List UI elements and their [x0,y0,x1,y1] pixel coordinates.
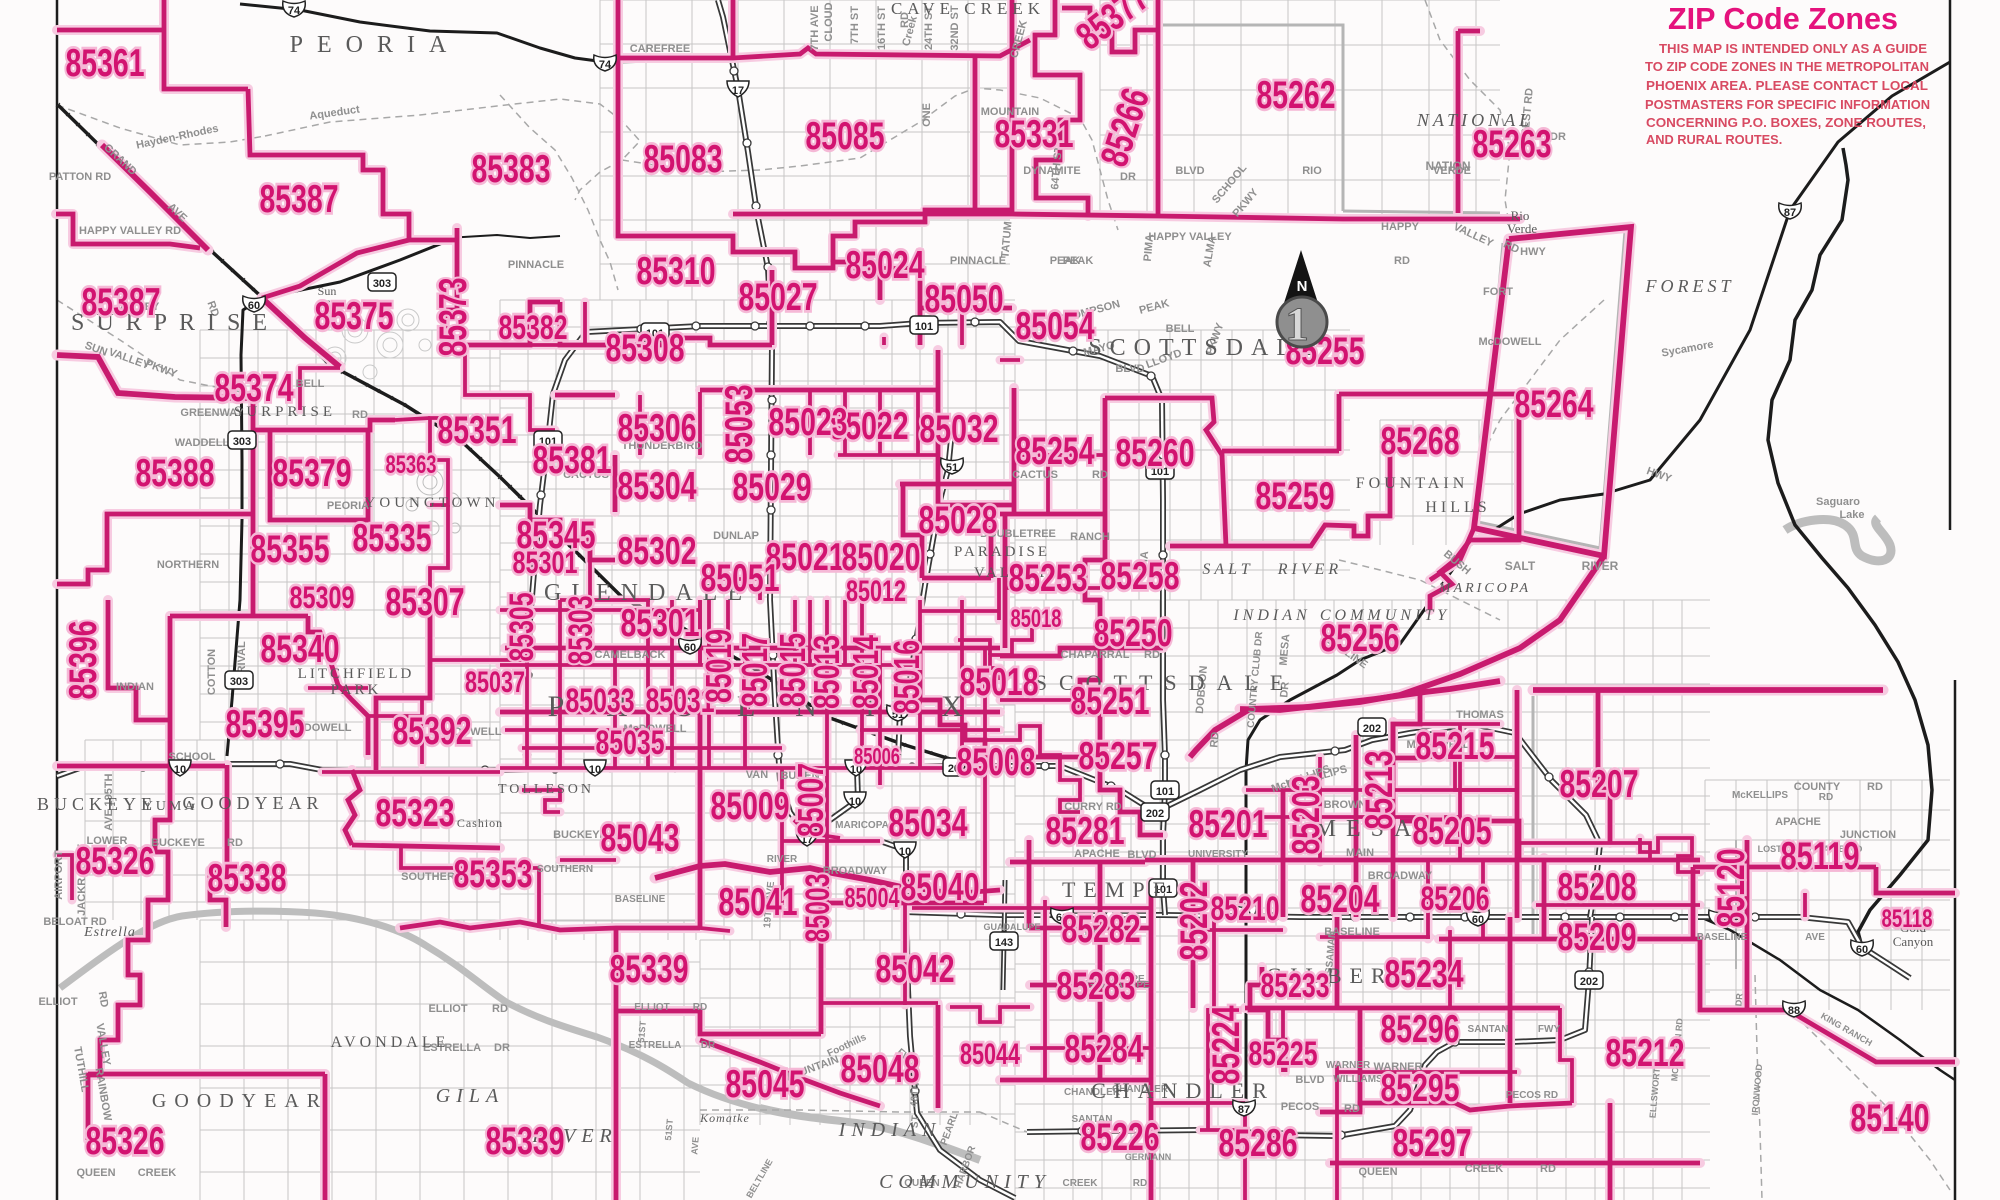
svg-text:85018: 85018 [960,661,1039,704]
svg-text:85032: 85032 [920,408,999,451]
svg-text:85306: 85306 [618,407,697,450]
svg-text:85003: 85003 [799,874,837,943]
svg-text:85323: 85323 [376,792,455,835]
svg-text:85118: 85118 [1882,905,1933,933]
svg-text:85258: 85258 [1101,555,1180,598]
svg-text:85305: 85305 [503,593,541,662]
svg-text:85264: 85264 [1515,383,1594,426]
svg-text:85023: 85023 [769,401,848,444]
svg-text:85203: 85203 [1285,776,1328,855]
svg-text:FOUNTAIN: FOUNTAIN [1356,475,1469,492]
svg-text:AND RURAL ROUTES.: AND RURAL ROUTES. [1646,132,1782,147]
svg-text:SALT: SALT [1202,561,1253,578]
svg-text:BASELINE: BASELINE [1697,932,1748,943]
svg-text:85013: 85013 [806,635,847,709]
svg-text:NATION: NATION [1425,159,1470,173]
svg-text:85326: 85326 [76,840,155,883]
svg-text:85259: 85259 [1256,475,1335,518]
svg-text:85008: 85008 [957,741,1036,784]
svg-text:INDIAN: INDIAN [116,681,154,693]
svg-text:85256: 85256 [1321,617,1400,660]
svg-text:85204: 85204 [1301,878,1380,921]
svg-text:RD: RD [1867,781,1883,793]
svg-text:101: 101 [1156,786,1174,798]
svg-text:85208: 85208 [1558,866,1637,909]
svg-text:AIRPORT: AIRPORT [53,850,65,900]
svg-text:85253: 85253 [1009,557,1088,600]
svg-text:85006: 85006 [854,743,900,769]
svg-text:RD: RD [1344,1103,1360,1115]
svg-text:88: 88 [1788,1005,1800,1017]
svg-text:INDIAN: INDIAN [1232,607,1310,624]
svg-text:85339: 85339 [486,1120,565,1163]
svg-text:85281: 85281 [1046,810,1125,853]
svg-text:AVONDALE: AVONDALE [331,1034,450,1051]
svg-text:85283: 85283 [1057,965,1136,1008]
svg-text:BUCKEYE: BUCKEYE [151,837,205,849]
svg-text:85029: 85029 [733,466,812,509]
svg-text:YOUNGTOWN: YOUNGTOWN [365,495,500,511]
svg-text:GOODYEAR: GOODYEAR [152,1090,328,1112]
svg-text:WADDELL: WADDELL [175,437,230,449]
svg-text:143: 143 [995,937,1013,949]
svg-text:GUADALUPE: GUADALUPE [983,922,1040,932]
svg-text:303: 303 [373,278,391,290]
svg-text:CONCERNING P.O. BOXES, ZON: CONCERNING P.O. BOXES, ZONE ROUTES, [1646,115,1926,130]
svg-text:BLVD: BLVD [1115,363,1144,375]
svg-text:RIO: RIO [1302,165,1322,177]
svg-text:85044: 85044 [960,1038,1020,1071]
svg-text:UNIVERSITY: UNIVERSITY [1188,849,1248,860]
svg-text:GILA: GILA [436,1085,504,1107]
svg-text:85205: 85205 [1413,810,1492,853]
svg-text:RD: RD [1133,1178,1147,1189]
svg-text:85053: 85053 [718,385,761,464]
svg-text:85043: 85043 [601,817,680,860]
svg-text:85351: 85351 [438,409,517,452]
svg-text:SANTAN: SANTAN [1468,1024,1509,1035]
svg-text:BELL: BELL [296,378,325,390]
svg-text:85361: 85361 [66,42,145,85]
svg-text:HAPPY VALLEY: HAPPY VALLEY [1148,231,1232,243]
svg-text:85282: 85282 [1062,908,1141,951]
svg-text:85054: 85054 [1016,305,1095,348]
svg-text:85375: 85375 [315,295,394,338]
svg-text:85035: 85035 [596,724,665,762]
svg-text:85251: 85251 [1071,680,1150,723]
svg-text:85033: 85033 [566,682,635,720]
svg-text:DR: DR [494,1042,510,1054]
svg-text:85215: 85215 [1416,725,1495,768]
svg-text:85037: 85037 [465,666,525,699]
svg-text:PATTON RD: PATTON RD [49,171,111,183]
svg-text:85007: 85007 [790,763,831,837]
svg-text:85387: 85387 [82,281,161,324]
svg-text:202: 202 [1580,976,1598,988]
svg-text:85335: 85335 [353,517,432,560]
svg-text:85309: 85309 [290,579,355,615]
svg-text:60: 60 [1856,944,1868,956]
svg-text:85262: 85262 [1257,74,1336,117]
svg-text:ONE: ONE [921,103,933,127]
svg-text:HAPPY: HAPPY [1381,221,1420,233]
svg-text:85296: 85296 [1381,1008,1460,1051]
svg-text:BUCKEYE: BUCKEYE [37,794,157,814]
svg-text:SALT: SALT [1505,559,1536,573]
svg-text:85340: 85340 [261,628,340,671]
svg-text:85120: 85120 [1710,849,1753,928]
svg-text:87: 87 [1238,1104,1250,1116]
svg-text:85383: 85383 [472,148,551,191]
svg-text:85257: 85257 [1079,735,1158,778]
svg-text:74: 74 [288,5,301,17]
svg-text:DR: DR [1550,131,1566,143]
svg-text:85233: 85233 [1261,967,1330,1005]
svg-text:202: 202 [1363,723,1381,735]
svg-text:Estrella: Estrella [83,925,136,940]
svg-text:85212: 85212 [1606,1032,1685,1075]
svg-text:BASELINE: BASELINE [615,894,666,905]
svg-text:85040: 85040 [901,866,980,909]
svg-text:INDIAN: INDIAN [838,1119,942,1141]
svg-text:HWY: HWY [1520,246,1546,258]
svg-text:85020: 85020 [842,536,921,579]
svg-text:85302: 85302 [618,530,697,573]
svg-text:BLVD: BLVD [1295,1074,1324,1086]
svg-text:51: 51 [946,462,958,474]
svg-text:GOODYEAR: GOODYEAR [183,793,324,813]
svg-text:85019: 85019 [698,629,739,703]
svg-text:85396: 85396 [62,621,105,700]
svg-text:85201: 85201 [1189,803,1268,846]
svg-text:WILLIAMS: WILLIAMS [1333,1074,1383,1085]
svg-text:85017: 85017 [734,633,775,707]
svg-text:APACHE: APACHE [1775,816,1821,828]
svg-text:ZIP Code Zones: ZIP Code Zones [1668,1,1898,36]
svg-text:85268: 85268 [1381,420,1460,463]
svg-text:QUEEN: QUEEN [1358,1166,1397,1178]
svg-text:85050: 85050 [925,278,1004,321]
svg-text:BUCKEYE: BUCKEYE [553,829,607,841]
svg-text:ELLIOT: ELLIOT [634,1002,670,1013]
svg-text:85363: 85363 [386,451,437,479]
svg-text:VAN: VAN [746,769,768,781]
svg-text:CAMELBACK: CAMELBACK [595,649,666,661]
svg-text:85213: 85213 [1358,751,1401,830]
svg-text:RD: RD [492,1003,508,1015]
svg-text:85045: 85045 [726,1063,805,1106]
svg-text:85355: 85355 [251,528,330,571]
svg-text:85374: 85374 [215,367,294,410]
svg-text:RD: RD [1819,792,1833,803]
svg-text:202: 202 [1146,808,1164,820]
svg-text:DR: DR [1733,992,1744,1006]
svg-text:85254: 85254 [1016,430,1095,473]
svg-text:N: N [1297,278,1308,295]
svg-text:THIS MAP IS INTENDED ONLY AS: THIS MAP IS INTENDED ONLY AS A GUIDE [1659,41,1927,56]
svg-text:DR: DR [701,1040,716,1051]
svg-text:85024: 85024 [846,244,925,287]
svg-text:85210: 85210 [1211,890,1280,928]
svg-text:ELLIOT: ELLIOT [38,996,77,1008]
svg-text:85028: 85028 [919,499,998,542]
svg-text:RIVER: RIVER [1277,561,1342,578]
svg-text:SOUTHERN: SOUTHERN [537,864,593,875]
svg-text:85295: 85295 [1381,1067,1460,1110]
svg-text:85009: 85009 [711,785,790,828]
svg-text:Cashion: Cashion [457,816,503,830]
svg-text:McDOWELL: McDOWELL [1479,336,1542,348]
svg-text:85234: 85234 [1385,953,1464,996]
svg-text:85353: 85353 [454,853,533,896]
svg-text:RD: RD [352,409,368,421]
svg-text:87: 87 [1784,207,1796,219]
svg-text:FWY: FWY [1538,1024,1561,1035]
svg-text:TEMPE: TEMPE [1062,877,1174,902]
svg-text:RD: RD [693,1002,707,1013]
svg-text:85224: 85224 [1205,1005,1248,1084]
svg-text:85004: 85004 [845,882,901,913]
svg-text:85140: 85140 [1851,1097,1930,1140]
svg-text:Verde: Verde [1507,221,1538,236]
svg-text:TOLLESON: TOLLESON [498,782,594,797]
svg-text:AVE: AVE [689,1136,701,1155]
svg-text:CREEK: CREEK [138,1167,177,1179]
svg-text:7TH ST: 7TH ST [849,6,861,44]
svg-text:85083: 85083 [644,138,723,181]
svg-text:PINNACLE: PINNACLE [950,255,1006,267]
svg-text:85387: 85387 [260,178,339,221]
svg-text:85310: 85310 [637,250,716,293]
svg-text:PECOS RD: PECOS RD [1506,1090,1558,1101]
svg-text:BLVD: BLVD [1127,849,1156,861]
svg-text:85381: 85381 [533,439,612,482]
svg-text:85085: 85085 [806,115,885,158]
svg-text:COTTON: COTTON [206,649,218,695]
svg-text:MARICOPA: MARICOPA [835,820,889,831]
svg-text:DR: DR [1120,171,1136,183]
svg-text:McKELLIPS: McKELLIPS [1732,790,1788,801]
svg-text:FOREST: FOREST [1645,276,1735,296]
svg-text:CREEK: CREEK [1062,1178,1098,1189]
svg-text:NORTHERN: NORTHERN [157,559,219,571]
svg-text:BELL: BELL [1166,323,1195,335]
svg-text:85297: 85297 [1393,1122,1472,1165]
svg-text:85286: 85286 [1219,1122,1298,1165]
svg-text:51ST: 51ST [663,1118,675,1141]
svg-text:RD: RD [1208,731,1221,748]
svg-text:85042: 85042 [876,948,955,991]
svg-text:85284: 85284 [1065,1028,1144,1071]
svg-text:PEAK: PEAK [1063,255,1094,267]
svg-text:85338: 85338 [208,857,287,900]
svg-text:10: 10 [174,764,186,776]
svg-text:85301: 85301 [621,602,700,645]
svg-text:Canyon: Canyon [1893,934,1934,949]
svg-text:ELLIOT: ELLIOT [428,1003,467,1015]
svg-text:85048: 85048 [841,1048,920,1091]
svg-text:85395: 85395 [226,703,305,746]
svg-text:PHOENIX AREA. PLEASE CONTA: PHOENIX AREA. PLEASE CONTACT LOCAL [1646,78,1928,93]
svg-text:85018: 85018 [1011,605,1062,633]
svg-text:85012: 85012 [846,575,906,608]
svg-text:85304: 85304 [618,465,697,508]
svg-text:10: 10 [589,764,601,776]
svg-text:85225: 85225 [1249,1035,1318,1073]
svg-text:10: 10 [899,846,911,858]
svg-text:COUNTY: COUNTY [1794,781,1841,793]
svg-text:85034: 85034 [889,802,968,845]
svg-text:85339: 85339 [610,948,689,991]
svg-text:85301: 85301 [513,544,578,580]
svg-text:Komatke: Komatke [699,1111,750,1125]
svg-text:85331: 85331 [995,113,1074,156]
svg-text:85119: 85119 [1781,835,1860,878]
svg-text:85308: 85308 [606,327,685,370]
svg-text:POSTMASTERS FOR SPECIFIC IN: POSTMASTERS FOR SPECIFIC INFORMATION [1645,97,1930,112]
svg-text:AVE: AVE [1805,932,1825,943]
svg-text:RD: RD [1394,255,1410,267]
svg-text:PEORIA: PEORIA [327,500,369,512]
svg-text:85260: 85260 [1116,432,1195,475]
svg-text:RD: RD [227,837,243,849]
svg-text:FORT: FORT [1483,286,1513,298]
svg-text:TO ZIP CODE ZONES IN THE METR: TO ZIP CODE ZONES IN THE METROPOLITAN [1645,59,1929,74]
svg-text:RIVER: RIVER [1582,559,1619,573]
svg-text:85263: 85263 [1473,123,1552,166]
svg-text:303: 303 [233,436,251,448]
svg-text:85051: 85051 [701,557,780,600]
svg-text:PEORIA: PEORIA [290,32,461,58]
svg-text:85373: 85373 [432,278,475,357]
svg-text:1: 1 [1285,298,1309,351]
svg-text:BLVD: BLVD [1175,165,1204,177]
svg-text:101: 101 [915,321,933,333]
svg-text:85027: 85027 [739,276,818,319]
svg-text:P: P [548,690,565,723]
svg-text:7TH AVE: 7TH AVE [809,5,821,50]
svg-text:Saguaro: Saguaro [1816,496,1860,508]
svg-text:85388: 85388 [136,452,215,495]
svg-text:85326: 85326 [86,1120,165,1163]
svg-text:CLOUD: CLOUD [823,2,835,41]
svg-text:CAREFREE: CAREFREE [630,43,691,55]
svg-text:85379: 85379 [273,452,352,495]
svg-text:DUNLAP: DUNLAP [713,530,759,542]
svg-text:85382: 85382 [499,309,568,347]
svg-text:WARNER: WARNER [1326,1060,1371,1071]
svg-text:MAIN: MAIN [1346,847,1374,859]
svg-text:THOMAS: THOMAS [1456,709,1504,721]
svg-text:PIMA: PIMA [1142,233,1156,261]
svg-text:RD: RD [1540,1163,1556,1175]
svg-text:PECOS: PECOS [1281,1101,1320,1113]
svg-text:85014: 85014 [845,634,886,709]
svg-text:85206: 85206 [1421,880,1490,918]
svg-text:85303: 85303 [562,596,600,665]
svg-text:PINNACLE: PINNACLE [508,259,564,271]
svg-text:85392: 85392 [393,710,472,753]
svg-text:85207: 85207 [1560,763,1639,806]
svg-text:303: 303 [230,676,248,688]
svg-text:RIVER: RIVER [767,854,798,865]
svg-text:PARK: PARK [331,682,382,698]
svg-text:RANCH: RANCH [1070,531,1110,543]
svg-text:CAVE CREEK: CAVE CREEK [891,0,1045,18]
svg-text:HILLS: HILLS [1425,499,1490,516]
svg-text:10: 10 [849,796,861,808]
svg-text:COMMUNITY: COMMUNITY [879,1171,1051,1193]
svg-text:74: 74 [599,59,612,71]
svg-text:85209: 85209 [1558,916,1637,959]
svg-text:85307: 85307 [386,581,465,624]
svg-text:85226: 85226 [1081,1116,1160,1159]
svg-text:HAPPY VALLEY RD: HAPPY VALLEY RD [79,225,181,237]
svg-text:QUEEN: QUEEN [76,1167,115,1179]
svg-text:MARICOPA: MARICOPA [1438,581,1531,596]
svg-text:85016: 85016 [886,640,927,714]
svg-text:16TH ST: 16TH ST [876,6,888,50]
svg-text:85250: 85250 [1094,612,1173,655]
svg-text:Lake: Lake [1839,509,1864,521]
svg-text:85041: 85041 [719,881,798,924]
svg-text:ESTRELLA: ESTRELLA [629,1040,682,1051]
svg-text:17: 17 [732,85,744,97]
